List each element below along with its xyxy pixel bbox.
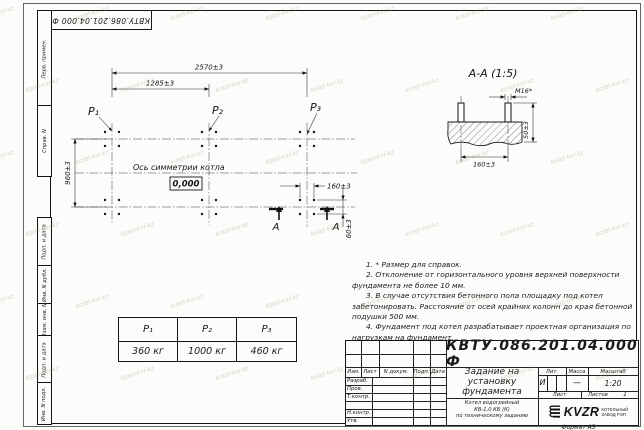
section-letter-left: А — [272, 222, 280, 233]
section-title: А-А (1:5) — [468, 67, 518, 80]
column-centerlines — [75, 123, 357, 227]
margin-field-vzam-inv: Взам. инв. N — [37, 303, 52, 337]
section-letter-right: А — [332, 222, 340, 233]
row-tkontr: Т.контр. — [347, 394, 372, 400]
note-3: 3. В случае отсутствия бетонного пола пл… — [352, 291, 635, 322]
company-logo: KVZR КОТЕЛЬНЫЙ ЗАВОД РЭП — [538, 398, 638, 425]
load-table-value-p1: 360 кг — [119, 342, 178, 361]
lit-label: Лит. — [538, 369, 566, 375]
load-table-header-p2: P₂ — [178, 318, 237, 342]
scale-value: 1:20 — [588, 379, 638, 388]
col-data: Дата — [430, 369, 446, 375]
drawing-title: Задание на установку фундамента — [446, 368, 538, 398]
logo-caption: КОТЕЛЬНЫЙ ЗАВОД РЭП — [601, 407, 628, 417]
margin-field-inv-podl: Инв. N подл. — [37, 382, 52, 425]
margin-field-podp-data-2: Подп. и дата — [37, 335, 52, 384]
format-label: Формат А3 — [520, 424, 637, 430]
dim-1285-label: 1285±3 — [146, 80, 174, 88]
technical-notes: 1. * Размер для справок. 2. Отклонение о… — [352, 260, 635, 343]
col-izm: Изм. — [346, 369, 361, 375]
dim-960-label: 960±3 — [64, 161, 72, 185]
section-view: А-А (1:5) М16* 50±3 160±3 — [425, 58, 640, 173]
mass-label: Масса — [566, 369, 588, 375]
row-utv: Утв. — [347, 418, 372, 424]
sheets-label: Листов — [581, 392, 615, 398]
title-block-doc-number: КВТУ.086.201.04.000 Ф — [446, 341, 638, 367]
bolt-size-label: М16* — [515, 87, 533, 95]
margin-field-podp-data-1: Подп. и дата — [37, 217, 52, 267]
elevation-value: 0,000 — [173, 180, 200, 190]
symmetry-axis-label: Ось симметрии котла — [133, 163, 225, 172]
row-nkontr: Н.контр. — [347, 410, 372, 416]
sheet-label: Лист — [538, 392, 581, 398]
load-table-value-p2: 1000 кг — [178, 342, 237, 361]
lit-value: И — [538, 378, 547, 387]
scale-label: Масштаб — [588, 369, 638, 375]
load-point-p1-label: P₁ — [88, 105, 99, 118]
col-doc: N докум. — [379, 369, 413, 375]
drawing-subtitle: Котел водогрейный КВ-1,0 КБ (К) по техни… — [446, 400, 538, 425]
foundation-block — [448, 122, 522, 146]
drawing-sheet: КВТУ.086.201.04.000 Ф Перв. примен. Спра… — [0, 0, 644, 430]
note-1: 1. * Размер для справок. — [352, 260, 635, 270]
load-point-leaders — [99, 113, 317, 134]
plan-view: 2570±3 1285±3 960±3 160±3 160±3 P₁ P₂ P₃… — [55, 55, 365, 240]
dim-50-label: 50±3 — [522, 121, 530, 139]
top-doc-number: КВТУ.086.201.04.000 Ф — [52, 16, 150, 25]
coil-icon — [548, 404, 562, 420]
row-razrab: Разраб. — [347, 378, 372, 384]
dim-2570-label: 2570±3 — [195, 64, 223, 72]
margin-field-inv-dubl: Инв. N дубл. — [37, 265, 52, 305]
load-table: P₁ P₂ P₃ 360 кг 1000 кг 460 кг — [118, 317, 297, 362]
load-point-p3-label: P₃ — [310, 101, 322, 114]
dim-160-v-label: 160±3 — [345, 219, 353, 240]
margin-field-perv-primen: Перв. примен. — [37, 10, 52, 107]
col-list: Лист — [361, 369, 379, 375]
col-podp: Подп. — [413, 369, 430, 375]
dim-160-h-label: 160±3 — [327, 183, 351, 191]
note-2: 2. Отклонение от горизонтального уровня … — [352, 270, 635, 291]
margin-field-sprav-n: Справ. N — [37, 105, 52, 177]
load-table-header-p1: P₁ — [119, 318, 178, 342]
section-cut-marks: А А — [269, 206, 340, 233]
logo-text: KVZR — [564, 405, 600, 419]
load-table-header-p3: P₃ — [237, 318, 296, 342]
row-prov: Пров. — [347, 386, 372, 392]
load-table-value-p3: 460 кг — [237, 342, 296, 361]
dim-160-label: 160±3 — [473, 161, 495, 169]
mass-value: — — [566, 378, 588, 387]
title-block: Изм. Лист N докум. Подп. Дата Разраб. Пр… — [345, 340, 639, 426]
load-point-p2-label: P₂ — [212, 104, 224, 117]
top-doc-number-box: КВТУ.086.201.04.000 Ф — [50, 10, 152, 30]
